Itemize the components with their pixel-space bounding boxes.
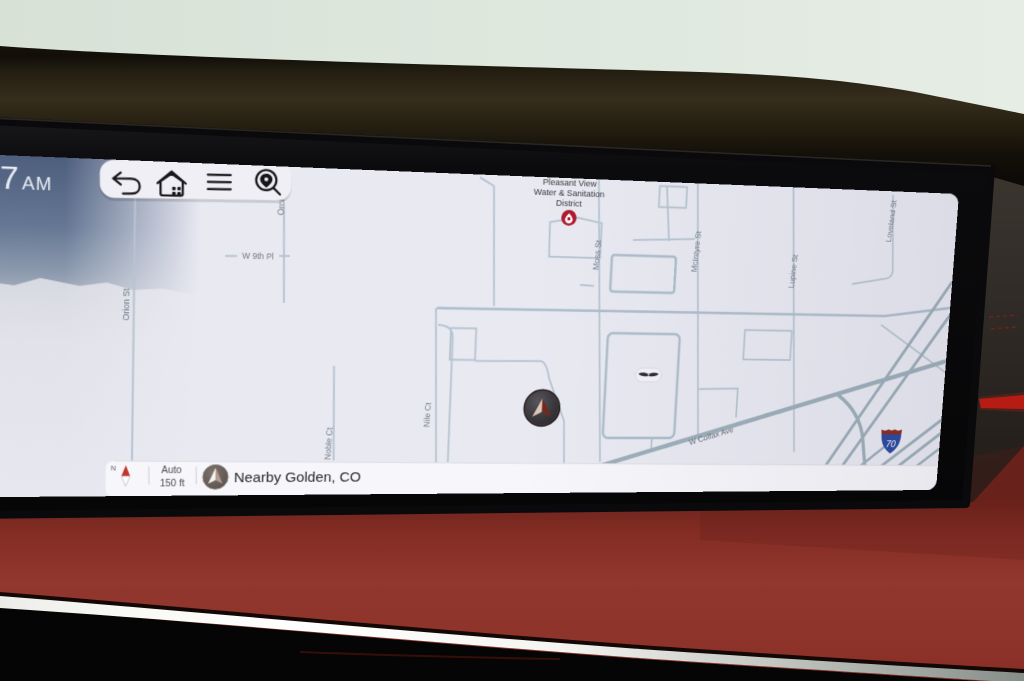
svg-text:150 ft: 150 ft: [160, 479, 185, 490]
svg-text:N: N: [111, 465, 116, 473]
svg-text:7: 7: [0, 160, 19, 197]
svg-text:AM: AM: [22, 175, 53, 196]
svg-text:Nearby Golden, CO: Nearby Golden, CO: [234, 469, 361, 485]
svg-text:Auto: Auto: [161, 465, 182, 476]
svg-text:Nile Ct: Nile Ct: [422, 402, 433, 427]
svg-text:Orion St: Orion St: [122, 288, 133, 321]
svg-text:W 9th Pl: W 9th Pl: [242, 251, 274, 261]
